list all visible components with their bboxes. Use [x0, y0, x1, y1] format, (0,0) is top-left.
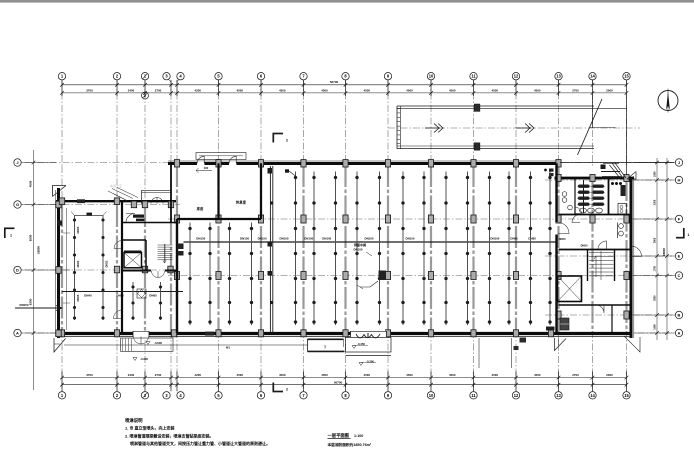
svg-text:DN65: DN65 [149, 294, 157, 298]
svg-text:下: 下 [324, 345, 327, 349]
svg-text:4500: 4500 [492, 88, 499, 92]
svg-text:B: B [678, 313, 681, 318]
svg-text:10: 10 [429, 393, 434, 398]
svg-text:4500: 4500 [29, 180, 33, 187]
svg-text:4500: 4500 [406, 88, 413, 92]
svg-text:G: G [16, 202, 19, 207]
svg-text:DN100: DN100 [322, 237, 331, 241]
svg-text:4500: 4500 [449, 88, 456, 92]
svg-text:库房: 库房 [196, 206, 204, 211]
svg-text:J: J [16, 160, 18, 165]
svg-text:12: 12 [514, 393, 519, 398]
svg-text:14: 14 [590, 393, 595, 398]
svg-text:4500: 4500 [449, 373, 456, 377]
svg-text:4500: 4500 [406, 373, 413, 377]
svg-text:DN100: DN100 [354, 248, 363, 252]
svg-text:DN100: DN100 [304, 237, 313, 241]
svg-text:6500: 6500 [29, 234, 33, 241]
svg-text:DN25: DN25 [76, 226, 80, 233]
svg-text:2400: 2400 [128, 373, 135, 377]
svg-text:休息室: 休息室 [235, 200, 247, 205]
svg-text:DN150: DN150 [20, 303, 29, 307]
svg-text:3500: 3500 [653, 237, 656, 243]
svg-text:4200: 4200 [195, 88, 202, 92]
svg-text:DN50: DN50 [559, 237, 566, 241]
svg-text:DN100: DN100 [365, 237, 374, 241]
svg-text:喷淋管道与其他管道交叉，间按压力管让重力管、小管道让大管道的: 喷淋管道与其他管道交叉，间按压力管让重力管、小管道让大管道的原则避让。 [130, 440, 270, 446]
svg-text:14: 14 [590, 74, 595, 79]
svg-text:4500: 4500 [279, 88, 286, 92]
svg-text:16800: 16800 [662, 248, 666, 256]
svg-text:车道上空: 车道上空 [110, 183, 122, 188]
svg-text:DN50: DN50 [581, 244, 588, 248]
svg-text:本层消防面积约1850.76m²: 本层消防面积约1850.76m² [327, 442, 372, 447]
svg-text:3550: 3550 [653, 295, 656, 301]
svg-text:DN32: DN32 [105, 260, 109, 267]
svg-text:DN150: DN150 [196, 237, 205, 241]
svg-text:4500: 4500 [364, 373, 371, 377]
svg-text:50700: 50700 [330, 80, 339, 84]
svg-text:DN100: DN100 [280, 237, 289, 241]
svg-text:11: 11 [471, 393, 476, 398]
svg-text:50700: 50700 [334, 380, 343, 384]
svg-text:2700: 2700 [155, 373, 162, 377]
svg-text:2: 2 [286, 139, 288, 143]
svg-text:A: A [16, 331, 19, 336]
svg-text:4500: 4500 [237, 373, 244, 377]
svg-text:2000: 2000 [606, 373, 613, 377]
svg-text:4500: 4500 [279, 373, 286, 377]
svg-text:DN80: DN80 [510, 237, 518, 241]
svg-text:DN80: DN80 [528, 237, 536, 241]
svg-text:16800: 16800 [37, 246, 41, 254]
svg-text:2000: 2000 [606, 88, 613, 92]
svg-text:12: 12 [514, 74, 519, 79]
svg-text:15: 15 [624, 74, 629, 79]
svg-text:6300: 6300 [29, 298, 33, 305]
svg-text:DN100: DN100 [490, 237, 499, 241]
svg-text:4200: 4200 [195, 373, 202, 377]
svg-text:A: A [678, 331, 681, 336]
svg-text:4500: 4500 [364, 88, 371, 92]
svg-text:13: 13 [556, 74, 561, 79]
svg-text:D: D [16, 268, 19, 273]
svg-text:1:100: 1:100 [354, 434, 363, 438]
svg-text:喷淋说明: 喷淋说明 [125, 417, 143, 424]
svg-text:10: 10 [429, 74, 434, 79]
svg-text:2700: 2700 [572, 373, 579, 377]
svg-text:DN40: DN40 [84, 294, 92, 298]
svg-text:4500: 4500 [534, 88, 541, 92]
svg-text:2700: 2700 [572, 88, 579, 92]
svg-text:3300: 3300 [653, 199, 656, 205]
svg-text:4500: 4500 [321, 88, 328, 92]
svg-text:H: H [678, 178, 681, 183]
svg-text:1550: 1550 [653, 171, 656, 177]
svg-text:2: 2 [286, 388, 288, 392]
svg-text:DN25: DN25 [76, 294, 80, 301]
svg-text:4500: 4500 [321, 373, 328, 377]
svg-text:C: C [678, 273, 681, 278]
svg-text:4500: 4500 [492, 373, 499, 377]
svg-text:4500: 4500 [237, 88, 244, 92]
svg-text:1: 1 [10, 234, 12, 238]
svg-text:-0.600: -0.600 [154, 341, 162, 345]
svg-text:2700: 2700 [155, 88, 162, 92]
svg-text:300: 300 [204, 166, 209, 170]
svg-text:DN150: DN150 [258, 237, 267, 241]
svg-text:2. 喷淋管道随梁敷设安装，喷淋支管贴梁底安装。: 2. 喷淋管道随梁敷设安装，喷淋支管贴梁底安装。 [125, 432, 213, 438]
svg-text:DN32: DN32 [76, 260, 80, 267]
svg-text:4500: 4500 [534, 373, 541, 377]
svg-text:11: 11 [471, 74, 476, 79]
svg-text:一层平面图: 一层平面图 [328, 432, 350, 439]
svg-text:3700: 3700 [86, 88, 93, 92]
svg-text:15: 15 [624, 393, 629, 398]
svg-text:预留水阀: 预留水阀 [354, 242, 366, 247]
svg-text:DN150: DN150 [240, 237, 249, 241]
svg-text:1600: 1600 [653, 324, 656, 330]
svg-text:DN100: DN100 [406, 237, 415, 241]
svg-text:2400: 2400 [128, 88, 135, 92]
svg-text:13: 13 [556, 393, 561, 398]
svg-text:1. ⊕ 直立型喷头，向上安装: 1. ⊕ 直立型喷头，向上安装 [125, 425, 175, 431]
svg-text:DN50: DN50 [116, 294, 124, 298]
svg-text:M1: M1 [226, 346, 230, 350]
svg-text:1750: 1750 [653, 265, 656, 271]
svg-text:J: J [678, 160, 680, 165]
svg-text:3700: 3700 [86, 373, 93, 377]
svg-text:1: 1 [688, 233, 690, 237]
svg-text:-0.300: -0.300 [140, 357, 148, 361]
svg-text:E: E [678, 254, 681, 259]
